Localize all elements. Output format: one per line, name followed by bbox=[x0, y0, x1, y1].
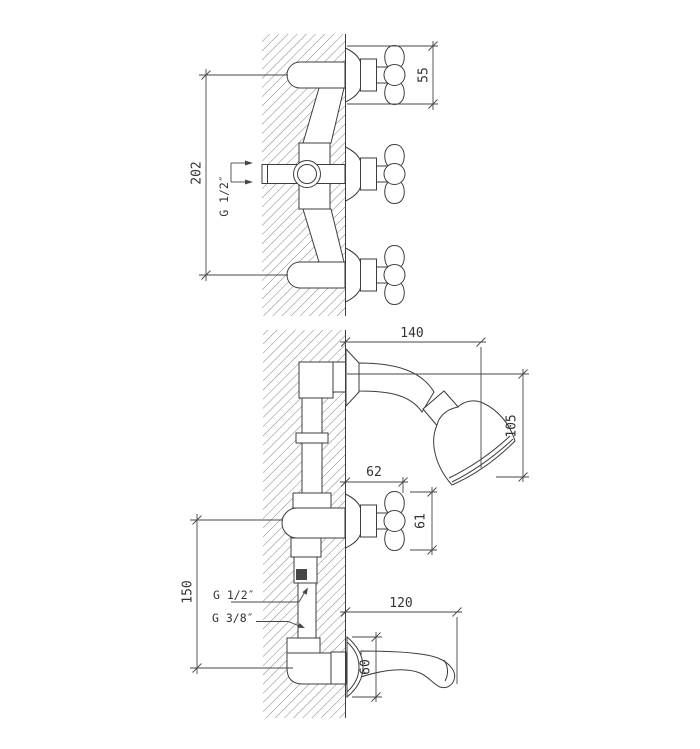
diverter-valve bbox=[346, 492, 406, 551]
arm-escutcheon bbox=[346, 349, 359, 406]
dim-150-label: 150 bbox=[181, 580, 196, 603]
coupling-nut-upper bbox=[291, 538, 321, 557]
dim-105-label: 105 bbox=[505, 414, 520, 437]
valve-top bbox=[346, 46, 406, 105]
spout-connector bbox=[331, 652, 346, 684]
dim-60-label: 60 bbox=[359, 659, 374, 675]
dim-62-label: 62 bbox=[366, 465, 382, 480]
thread-callout-upper: G 1/2″ bbox=[217, 161, 253, 217]
dim-55-label: 55 bbox=[417, 67, 432, 83]
coupling-nut-lower bbox=[287, 638, 320, 653]
dim-61: 61 bbox=[410, 487, 437, 555]
thread-label-g12: G 1/2″ bbox=[213, 588, 255, 602]
thread-fitting-detail bbox=[296, 569, 307, 580]
riser-pipe-1 bbox=[302, 398, 322, 433]
thread-label-g38: G 3/8″ bbox=[212, 611, 254, 625]
tub-spout bbox=[361, 651, 455, 688]
dim-140-label: 140 bbox=[400, 326, 423, 341]
riser-pipe-2 bbox=[302, 443, 322, 493]
technical-drawing-canvas: 202 55 G 1/2″ bbox=[0, 0, 700, 749]
lower-view: 140 105 62 61 bbox=[181, 326, 530, 718]
elbow-bottom bbox=[287, 653, 331, 684]
pipe-sleeve-1 bbox=[296, 433, 328, 443]
shower-arm bbox=[359, 363, 434, 412]
dim-202-label: 202 bbox=[190, 161, 205, 184]
valve-middle bbox=[346, 145, 406, 204]
dim-120-label: 120 bbox=[389, 596, 412, 611]
valve-hub-inner bbox=[298, 165, 317, 184]
supply-capsule-top bbox=[287, 62, 345, 88]
valve-body-lower bbox=[282, 508, 345, 538]
upper-view: 202 55 G 1/2″ bbox=[190, 34, 439, 316]
pipe-sleeve-2 bbox=[293, 493, 331, 508]
supply-capsule-bottom bbox=[287, 262, 345, 288]
elbow-top-vertical bbox=[299, 362, 333, 398]
thread-label-upper: G 1/2″ bbox=[217, 175, 231, 217]
arrowhead-icon bbox=[245, 161, 253, 166]
arrowhead-icon bbox=[245, 180, 253, 185]
faucet-installation-drawing: 202 55 G 1/2″ bbox=[0, 0, 700, 749]
dim-61-label: 61 bbox=[414, 513, 429, 529]
dim-62: 62 bbox=[340, 465, 408, 493]
valve-bottom bbox=[346, 246, 406, 305]
